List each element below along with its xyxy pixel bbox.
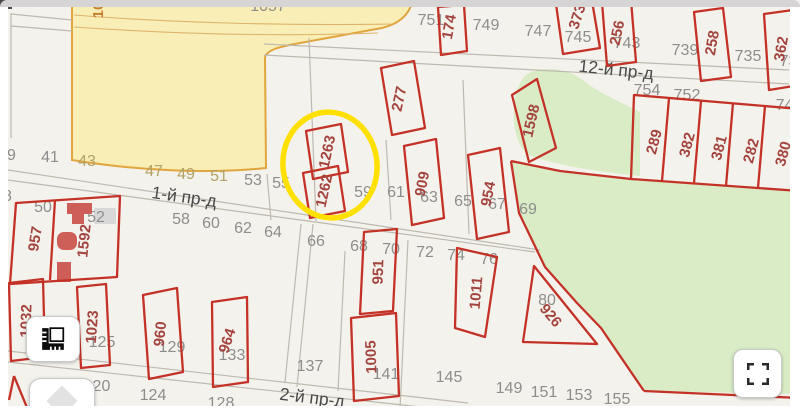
parcel-number-label: 1023 bbox=[83, 310, 102, 344]
house-number: 145 bbox=[436, 369, 463, 386]
parcel-number-label: 1005 bbox=[362, 340, 380, 374]
house-number: 747 bbox=[525, 23, 552, 40]
house-number: 47 bbox=[145, 163, 163, 180]
house-number: 735 bbox=[735, 48, 762, 65]
house-number: 53 bbox=[244, 172, 262, 189]
parcel-number-label: 289 bbox=[643, 128, 666, 157]
house-number: 153 bbox=[566, 387, 593, 404]
house-number: 137 bbox=[297, 358, 324, 375]
parcel-corner-line bbox=[14, 376, 28, 410]
measure-button[interactable] bbox=[26, 316, 80, 362]
house-number: 68 bbox=[350, 238, 368, 255]
house-number: 51 bbox=[210, 168, 228, 185]
house-number: 69 bbox=[519, 201, 537, 218]
house-number: 72 bbox=[416, 244, 434, 261]
house-number: 65 bbox=[454, 193, 472, 210]
house-number: 749 bbox=[473, 17, 500, 34]
parcel-number-label: 277 bbox=[389, 85, 411, 113]
house-number: 60 bbox=[202, 215, 220, 232]
house-number: 58 bbox=[172, 211, 190, 228]
house-number: 66 bbox=[307, 233, 325, 250]
house-number: 124 bbox=[140, 387, 167, 404]
street-label: 12-й пр-д bbox=[578, 56, 655, 84]
parcel-number-label: 957 bbox=[25, 225, 46, 252]
parcel-number-label: 960 bbox=[151, 321, 171, 348]
house-number: 64 bbox=[264, 224, 282, 241]
map-layers: 3941434749515355596163656769485052586062… bbox=[0, 0, 800, 410]
parcel-number-label: 1263 bbox=[316, 134, 340, 170]
house-number: 752 bbox=[674, 87, 701, 104]
top-bar bbox=[0, 0, 800, 7]
land-parcel-yellow[interactable] bbox=[72, 0, 413, 171]
parcel-corner-line bbox=[9, 376, 14, 400]
map-canvas[interactable]: 3941434749515355596163656769485052586062… bbox=[0, 0, 800, 410]
frame-right bbox=[790, 7, 800, 410]
house-number: 739 bbox=[672, 42, 699, 59]
house-number: 151 bbox=[531, 384, 558, 401]
parcel-number-label: 258 bbox=[702, 29, 723, 57]
house-number: 61 bbox=[387, 184, 405, 201]
frame-bottom bbox=[0, 406, 800, 410]
parcel-number-label: 951 bbox=[370, 259, 388, 285]
ruler-icon bbox=[40, 326, 66, 352]
building-footprint bbox=[57, 232, 77, 250]
house-number: 149 bbox=[496, 380, 523, 397]
house-number: 49 bbox=[177, 166, 195, 183]
street-label: 1-й пр-д bbox=[150, 182, 218, 211]
parcel-number-label: 174 bbox=[439, 12, 460, 40]
house-number: 43 bbox=[78, 153, 96, 170]
fullscreen-icon bbox=[747, 363, 769, 385]
frame-left bbox=[0, 7, 8, 410]
house-number: 41 bbox=[41, 149, 59, 166]
house-number: 62 bbox=[234, 220, 252, 237]
parcel-number-label: 1592 bbox=[74, 223, 94, 258]
parcel-number-label: 1011 bbox=[467, 276, 487, 310]
fullscreen-button[interactable] bbox=[733, 349, 782, 398]
building-footprint bbox=[72, 212, 84, 224]
house-number: 745 bbox=[565, 29, 592, 46]
